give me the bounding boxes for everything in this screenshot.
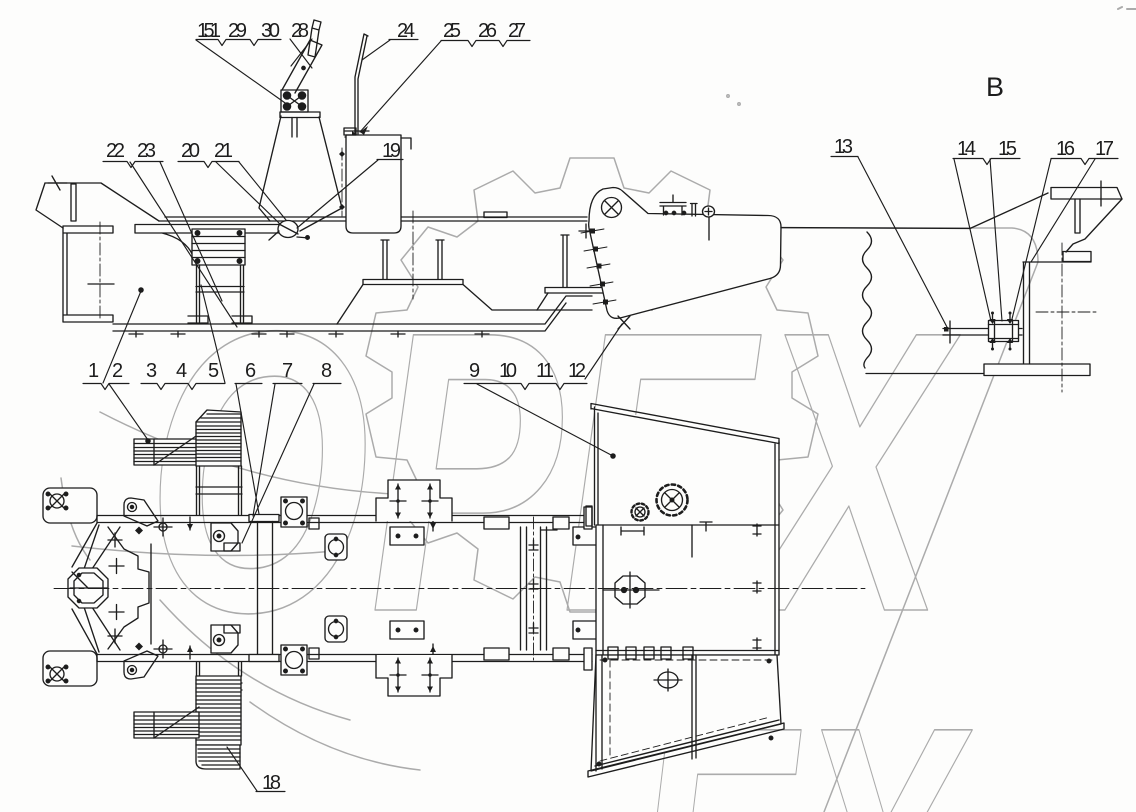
svg-text:OPEX: OPEX: [146, 248, 961, 695]
svg-text:27: 27: [508, 20, 526, 42]
svg-text:8: 8: [321, 360, 332, 382]
svg-text:24: 24: [397, 20, 415, 42]
svg-text:21: 21: [214, 140, 233, 162]
svg-text:12: 12: [568, 360, 586, 382]
svg-text:B: B: [986, 72, 1004, 102]
svg-text:6: 6: [245, 360, 256, 382]
svg-text:1: 1: [88, 360, 99, 382]
svg-text:19: 19: [382, 140, 401, 162]
svg-text:10: 10: [499, 360, 517, 382]
svg-text:22: 22: [106, 140, 125, 162]
svg-text:20: 20: [181, 140, 200, 162]
svg-text:3: 3: [146, 360, 157, 382]
svg-text:13: 13: [834, 136, 853, 158]
svg-text:23: 23: [137, 140, 156, 162]
svg-text:28: 28: [291, 20, 309, 42]
svg-text:26: 26: [478, 20, 497, 42]
svg-text:2: 2: [112, 360, 123, 382]
svg-text:9: 9: [469, 360, 480, 382]
svg-text:15: 15: [998, 138, 1017, 160]
svg-text:7: 7: [282, 360, 293, 382]
svg-text:5: 5: [208, 360, 219, 382]
svg-text:18: 18: [262, 772, 281, 794]
svg-text:151: 151: [197, 20, 221, 42]
svg-text:14: 14: [957, 138, 976, 160]
svg-text:17: 17: [1095, 138, 1114, 160]
svg-text:25: 25: [443, 20, 461, 42]
svg-text:29: 29: [228, 20, 247, 42]
svg-text:11: 11: [536, 360, 554, 382]
svg-text:16: 16: [1056, 138, 1075, 160]
svg-text:4: 4: [176, 360, 187, 382]
svg-text:30: 30: [261, 20, 280, 42]
